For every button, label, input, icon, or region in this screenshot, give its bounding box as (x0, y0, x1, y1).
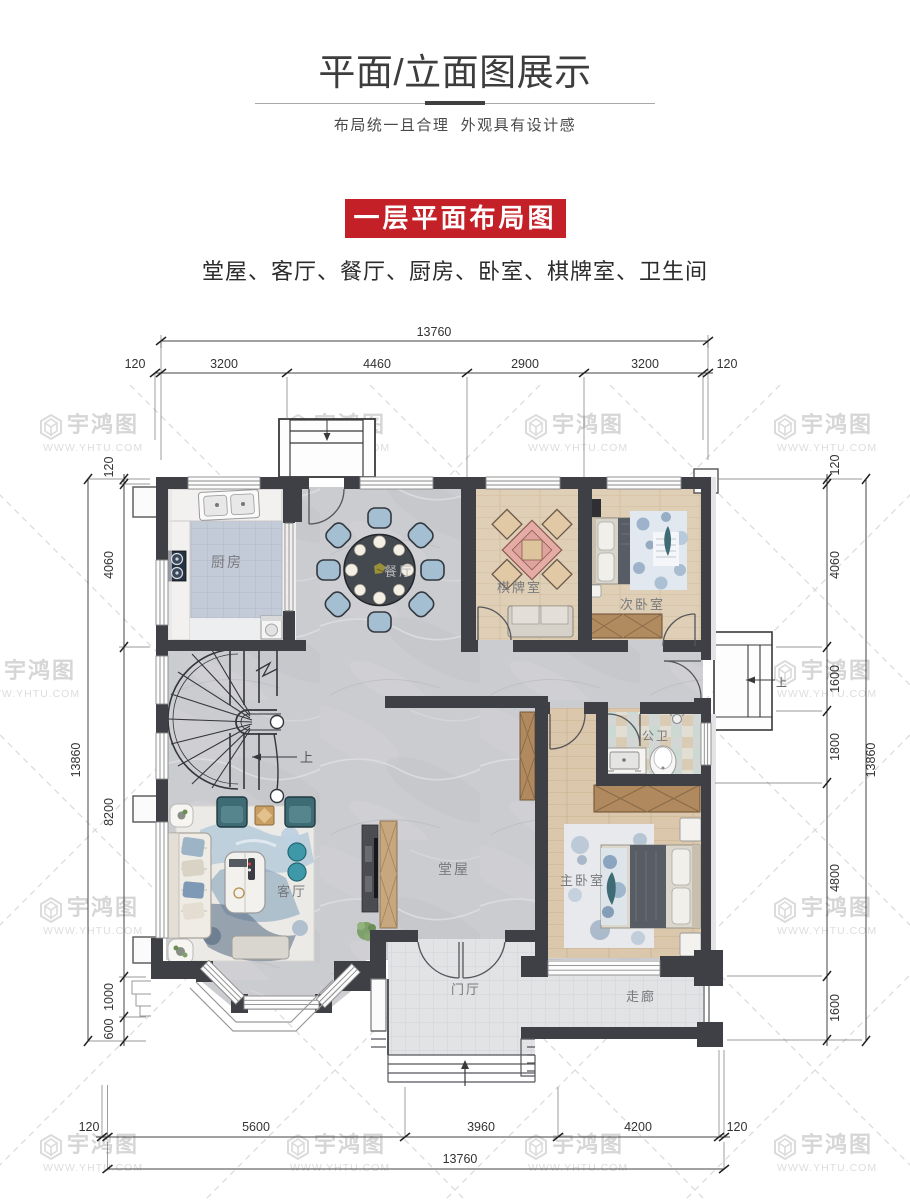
svg-text:13760: 13760 (417, 325, 452, 339)
svg-text:3960: 3960 (467, 1120, 495, 1134)
svg-text:4060: 4060 (828, 551, 842, 579)
svg-text:8200: 8200 (102, 798, 116, 826)
svg-text:走廊: 走廊 (626, 989, 656, 1004)
svg-text:120: 120 (717, 357, 738, 371)
svg-text:5600: 5600 (242, 1120, 270, 1134)
svg-text:上: 上 (300, 750, 313, 765)
svg-text:2900: 2900 (511, 357, 539, 371)
svg-text:120: 120 (727, 1120, 748, 1134)
svg-text:13760: 13760 (443, 1152, 478, 1166)
svg-text:上: 上 (776, 676, 787, 689)
svg-text:13860: 13860 (69, 743, 83, 778)
svg-text:主卧室: 主卧室 (560, 873, 605, 888)
svg-text:餐厅: 餐厅 (384, 564, 414, 579)
svg-text:120: 120 (125, 357, 146, 371)
svg-text:3200: 3200 (631, 357, 659, 371)
svg-text:120: 120 (828, 455, 842, 476)
svg-text:门厅: 门厅 (451, 982, 481, 997)
svg-text:3200: 3200 (210, 357, 238, 371)
svg-text:120: 120 (102, 457, 116, 478)
svg-text:4060: 4060 (102, 551, 116, 579)
svg-text:1600: 1600 (828, 665, 842, 693)
svg-text:厨房: 厨房 (211, 554, 243, 570)
svg-text:1000: 1000 (102, 983, 116, 1011)
svg-text:4800: 4800 (828, 864, 842, 892)
svg-text:棋牌室: 棋牌室 (497, 580, 542, 595)
svg-text:堂屋: 堂屋 (438, 861, 470, 877)
svg-text:1800: 1800 (828, 733, 842, 761)
svg-text:次卧室: 次卧室 (620, 597, 665, 612)
svg-text:600: 600 (102, 1019, 116, 1040)
svg-text:公卫: 公卫 (642, 729, 670, 743)
svg-text:120: 120 (79, 1120, 100, 1134)
svg-text:4460: 4460 (363, 357, 391, 371)
svg-text:1600: 1600 (828, 994, 842, 1022)
svg-text:4200: 4200 (624, 1120, 652, 1134)
svg-text:13860: 13860 (864, 743, 878, 778)
svg-text:客厅: 客厅 (277, 884, 307, 899)
